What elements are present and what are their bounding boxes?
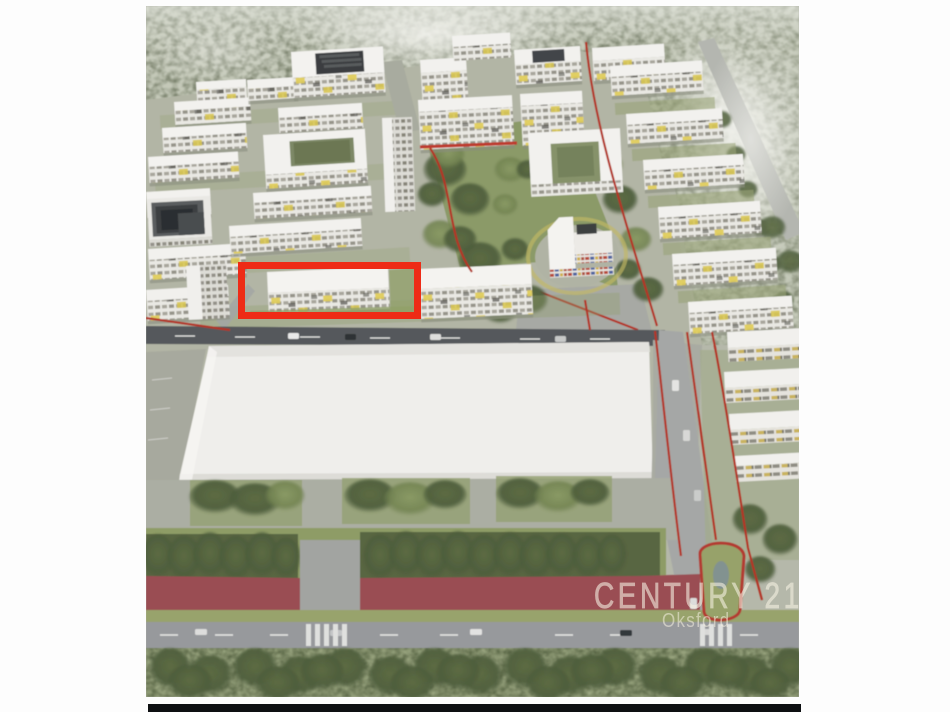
svg-text:Oksford: Oksford bbox=[662, 609, 730, 632]
